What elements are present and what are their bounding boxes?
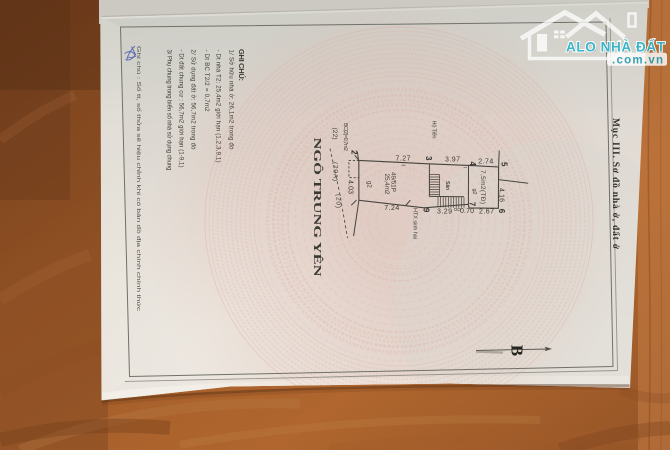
svg-text:ALO NHÀ ĐẤT: ALO NHÀ ĐẤT bbox=[566, 40, 666, 55]
svg-text:g2: g2 bbox=[471, 189, 477, 195]
svg-text:7: 7 bbox=[467, 202, 476, 207]
svg-text:Mục III. Sơ đồ nhà ở, đất ở: Mục III. Sơ đồ nhà ở, đất ở bbox=[610, 118, 621, 250]
svg-text:2.74: 2.74 bbox=[478, 158, 493, 165]
svg-text:.com.vn: .com.vn bbox=[612, 54, 663, 66]
svg-text:4.16: 4.16 bbox=[498, 188, 505, 202]
svg-text:Ghi chú : Số tt, số thửa sẽ hi: Ghi chú : Số tt, số thửa sẽ hiệu chỉnh k… bbox=[135, 46, 142, 311]
svg-text:5: 5 bbox=[500, 162, 509, 167]
svg-text:7,5m2(TĐ): 7,5m2(TĐ) bbox=[479, 170, 486, 204]
svg-text:3.97: 3.97 bbox=[445, 157, 460, 164]
svg-text:NGÔ TRUNG YÊN: NGÔ TRUNG YÊN bbox=[311, 138, 324, 277]
svg-text:- Dt đất chung cư : 56,7m2 giớ: - Dt đất chung cư : 56,7m2 giới hạn (1-9… bbox=[177, 50, 183, 168]
svg-text:7.24: 7.24 bbox=[384, 205, 399, 212]
svg-text:2: 2 bbox=[350, 150, 359, 155]
svg-text:- Dt BC T2/2 = 0,7m2: - Dt BC T2/2 = 0,7m2 bbox=[203, 50, 209, 113]
svg-text:3.29: 3.29 bbox=[437, 209, 452, 216]
svg-text:9: 9 bbox=[421, 208, 430, 213]
svg-text:(20A): (20A) bbox=[332, 162, 339, 181]
svg-text:2.67: 2.67 bbox=[479, 209, 494, 216]
svg-text:Hộ Tiến: Hộ Tiến bbox=[431, 121, 437, 139]
svg-text:3: 3 bbox=[424, 156, 433, 161]
svg-text:4.03: 4.03 bbox=[346, 180, 353, 194]
svg-text:6: 6 bbox=[497, 209, 506, 214]
svg-text:1/ Sở hữu nhà ở: 26,1m2 trong: 1/ Sở hữu nhà ở: 26,1m2 trong đó bbox=[227, 50, 234, 151]
svg-text:(20): (20) bbox=[335, 194, 342, 208]
svg-text:25,4m2: 25,4m2 bbox=[383, 174, 390, 195]
svg-text:HTX sinh hai: HTX sinh hai bbox=[412, 208, 418, 239]
svg-text:g2: g2 bbox=[366, 181, 372, 188]
svg-text:- Dt nhà T2: 25,4m2 giới hạn (: - Dt nhà T2: 25,4m2 giới hạn (1,2,3,9,1) bbox=[214, 50, 220, 163]
svg-text:B: B bbox=[508, 345, 527, 356]
svg-text:3/ Phụ chung trong biển số nhà: 3/ Phụ chung trong biển số nhà sử dụng c… bbox=[166, 50, 173, 171]
svg-text:GHI CHÚ:: GHI CHÚ: bbox=[237, 49, 246, 81]
svg-text:BC(2)=0,7m2: BC(2)=0,7m2 bbox=[342, 123, 348, 151]
svg-text:Sân: Sân bbox=[444, 181, 450, 190]
svg-text:49/51P: 49/51P bbox=[390, 172, 397, 192]
svg-text:0.70: 0.70 bbox=[460, 208, 474, 215]
svg-text:(22): (22) bbox=[331, 128, 338, 140]
svg-text:7.27: 7.27 bbox=[396, 155, 411, 162]
svg-text:4: 4 bbox=[468, 162, 477, 167]
svg-text:2/ Sử dụng đất ở: 56,7m2 trong: 2/ Sử dụng đất ở: 56,7m2 trong đó bbox=[189, 50, 196, 151]
